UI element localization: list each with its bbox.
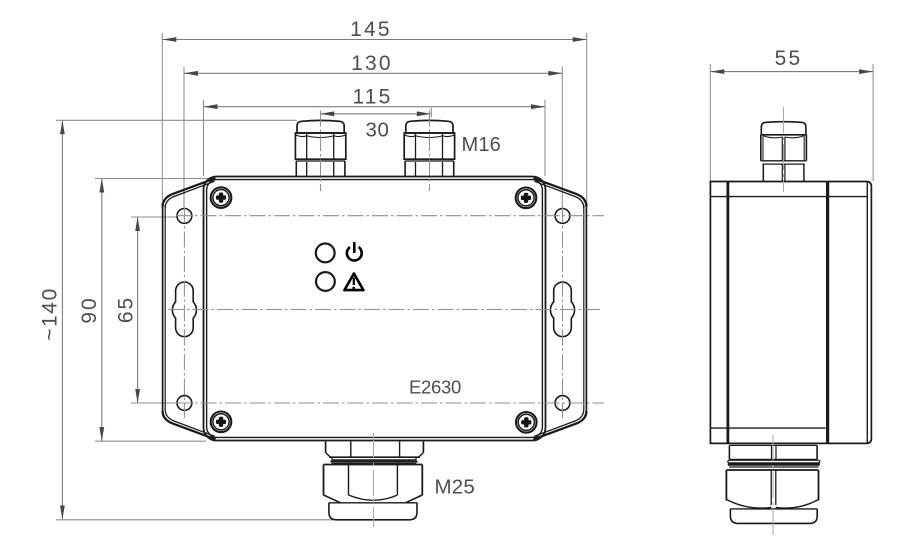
- svg-text:M25: M25: [435, 476, 475, 499]
- svg-text:30: 30: [365, 119, 389, 142]
- svg-text:115: 115: [352, 86, 392, 109]
- svg-text:55: 55: [775, 47, 803, 70]
- svg-text:65: 65: [115, 296, 138, 323]
- svg-text:90: 90: [78, 296, 101, 323]
- svg-text:M16: M16: [462, 134, 502, 156]
- svg-text:~140: ~140: [39, 287, 62, 341]
- svg-text:145: 145: [350, 18, 392, 41]
- svg-text:130: 130: [351, 52, 393, 75]
- svg-text:E2630: E2630: [409, 377, 461, 398]
